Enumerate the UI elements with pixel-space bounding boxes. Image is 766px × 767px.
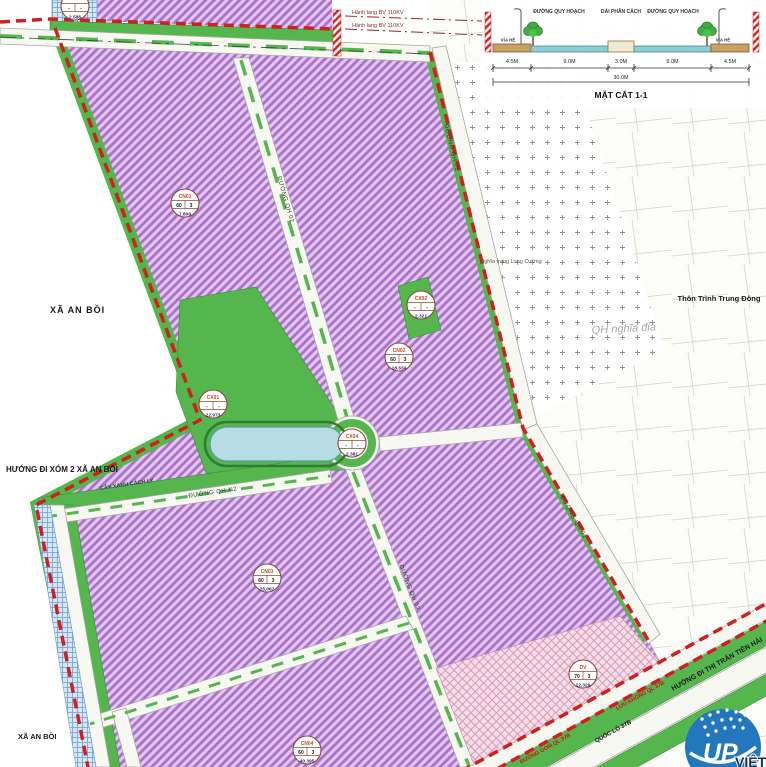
dim-3m: 3.0M [615,59,628,65]
parcel-area: 7.809 [179,212,191,218]
section-label-road-left: ĐƯỜNG QUY HOẠCH [533,7,585,15]
parcel-badge-cn03: CN03 60 3 25.067 [253,564,281,593]
label-hanh-lang-110kv-2: Hành lang BV 110KV [352,23,404,29]
parcel-badge-cx04: CX04 - - 2.381 [338,429,366,458]
roadway-left [531,46,608,52]
parcel-area: 12.329 [576,683,591,689]
label-xa-an-boi-lower: XÃ AN BỒI [18,731,56,741]
parcel-code: CN03 [261,569,274,575]
parcel-floors: 3 [588,674,591,680]
parcel-badge-cn04: CN04 60 3 40.395 [293,736,321,765]
parcel-code: CX04 [346,434,359,440]
parcel-code: CN01 [179,194,192,200]
parcel-density: 60 [390,357,396,363]
sidewalk-right [711,44,749,52]
parcel-code: CN04 [301,741,314,747]
parcel-area: 40.395 [300,759,315,765]
dim-9m-left: 9.0M [563,59,576,65]
pond [205,422,348,466]
parcel-area: 18.634 [392,366,407,372]
parcel-code: CX01 [207,395,220,401]
parcel-code: DV [580,665,588,671]
parcel-density: 70 [574,674,580,680]
label-thon-trinh-trung-dong: Thôn Trình Trung Đông [678,294,761,303]
parcel-badge-cn02: CN02 60 3 18.634 [385,343,413,372]
boundary-post-left [485,12,491,52]
dim-4-5m-left: 4.5M [506,59,519,65]
roadway-right [634,46,711,52]
label-xa-an-boi-upper: XÃ AN BỒI [50,304,105,315]
planning-map: XÃ AN BỒI HƯỚNG ĐI XÓM 2 XÃ AN BỒI XÃ AN… [0,0,766,767]
section-title: MẶT CẮT 1-1 [595,90,648,100]
map-canvas: XÃ AN BỒI HƯỚNG ĐI XÓM 2 XÃ AN BỒI XÃ AN… [0,0,766,767]
label-huong-di-xom2: HƯỚNG ĐI XÓM 2 XÃ AN BỒI [6,464,118,474]
parcel-badge-cx02: CX02 - - 2.321 [407,291,435,320]
parcel-density: 60 [258,578,264,584]
boundary-post-right [753,12,759,52]
boundary-marker-bar [333,10,341,56]
parcel-badge-dv: DV 70 3 12.329 [569,660,597,689]
sidewalk-left [493,44,531,52]
parcel-code: CX02 [415,296,428,302]
parcel-code: CN02 [393,348,406,354]
median-block [608,41,634,52]
logo-up-text: UP [703,739,738,767]
parcel-floors: 3 [404,357,407,363]
parcel-floors: 3 [190,203,193,209]
parcel-area: 2.586 [69,15,81,21]
logo-viet-text: VIỆT [735,753,766,767]
cross-section-diagram: ĐƯỜNG QUY HOẠCH DẢI PHÂN CÁCH ĐƯỜNG QUY … [483,0,766,108]
dim-9m-right: 9.0M [666,59,679,65]
section-label-median: DẢI PHÂN CÁCH [601,8,641,15]
parcel-badge-cx01: CX01 - - 22.973 [199,390,227,419]
parcel-area: 2.381 [346,452,358,458]
parcel-area: 22.973 [206,413,221,419]
parcel-density: 60 [298,750,304,756]
label-nghia-trang: Nghĩa trang Long Cường [480,259,541,265]
parcel-area: 25.067 [260,587,275,593]
parcel-floors: 3 [272,578,275,584]
section-label-sidewalk-right: VỈA HÈ [716,36,731,43]
parcel-floors: 3 [312,750,315,756]
parcel-badge-cn01: CN01 60 3 7.809 [171,189,199,218]
section-label-road-right: ĐƯỜNG QUY HOẠCH [647,7,699,15]
dim-total: 30.0M [613,75,629,81]
section-label-sidewalk-left: VỈA HÈ [501,36,516,43]
parcel-density: 60 [176,203,182,209]
parcel-area: 2.321 [415,314,427,320]
label-hanh-lang-110kv-1: Hành lang BV 110KV [352,10,404,16]
dim-4-5m-right: 4.5M [724,59,737,65]
